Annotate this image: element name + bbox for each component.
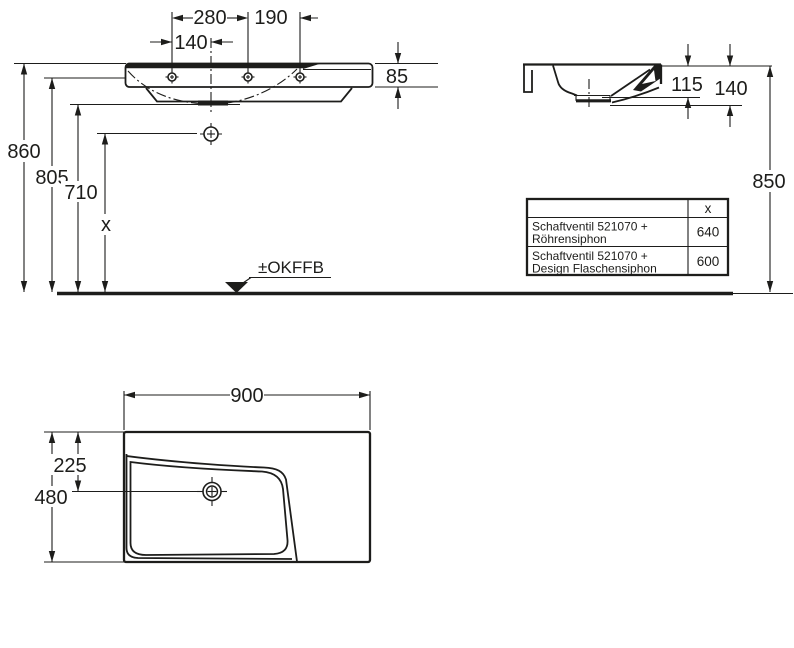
spec-table-row1-label: Schaftventil 521070 + Röhrensiphon bbox=[532, 220, 651, 247]
dim-label-85: 85 bbox=[386, 66, 408, 88]
basin-plan-bowl-outer-top bbox=[127, 456, 298, 562]
dim-label-480: 480 bbox=[34, 487, 67, 509]
dim-190: 190 bbox=[254, 7, 318, 72]
drawing-canvas: 280 190 140 85 860 805 bbox=[0, 0, 794, 648]
dim-140-front: 140 bbox=[150, 32, 233, 54]
spec-table: x Schaftventil 521070 + Röhrensiphon 640… bbox=[527, 199, 728, 276]
drain-symbol-front bbox=[200, 123, 222, 145]
dim-label-850: 850 bbox=[752, 171, 785, 193]
dim-label-710: 710 bbox=[64, 182, 97, 204]
dim-label-x: x bbox=[101, 214, 111, 236]
spec-table-row2-value: 600 bbox=[697, 254, 720, 269]
floor-marker-triangle bbox=[225, 282, 248, 293]
dim-label-190: 190 bbox=[254, 7, 287, 29]
spec-table-row1-value: 640 bbox=[697, 225, 720, 240]
basin-plan-outline bbox=[124, 432, 370, 562]
spec-table-header-x: x bbox=[705, 201, 712, 216]
dim-850: 850 bbox=[749, 66, 789, 292]
dim-label-225: 225 bbox=[53, 455, 86, 477]
dim-x: x bbox=[95, 134, 197, 293]
dim-label-140-side: 140 bbox=[714, 78, 747, 100]
faucet-hole-center bbox=[242, 71, 255, 84]
dim-900: 900 bbox=[124, 385, 370, 430]
dim-label-860: 860 bbox=[7, 141, 40, 163]
faucet-hole-right bbox=[294, 71, 307, 84]
dim-label-140-front: 140 bbox=[174, 32, 207, 54]
faucet-hole-left bbox=[166, 71, 179, 84]
dim-label-280: 280 bbox=[193, 7, 226, 29]
dim-label-900: 900 bbox=[230, 385, 263, 407]
dim-label-115: 115 bbox=[671, 74, 703, 96]
side-view bbox=[523, 64, 661, 109]
dim-225: 225 bbox=[50, 432, 91, 492]
floor-level-marker: ±OKFFB bbox=[225, 258, 331, 293]
basin-plan-bowl-inner bbox=[131, 462, 288, 555]
dim-85: 85 bbox=[375, 42, 438, 109]
basin-front-rim-wedge bbox=[303, 64, 321, 70]
floor-marker-label: ±OKFFB bbox=[258, 258, 324, 277]
front-view bbox=[126, 38, 373, 145]
plan-view bbox=[68, 432, 370, 562]
technical-drawing-page: 280 190 140 85 860 805 bbox=[0, 0, 794, 648]
spec-table-row2-label: Schaftventil 521070 + Design Flaschensip… bbox=[532, 249, 657, 276]
